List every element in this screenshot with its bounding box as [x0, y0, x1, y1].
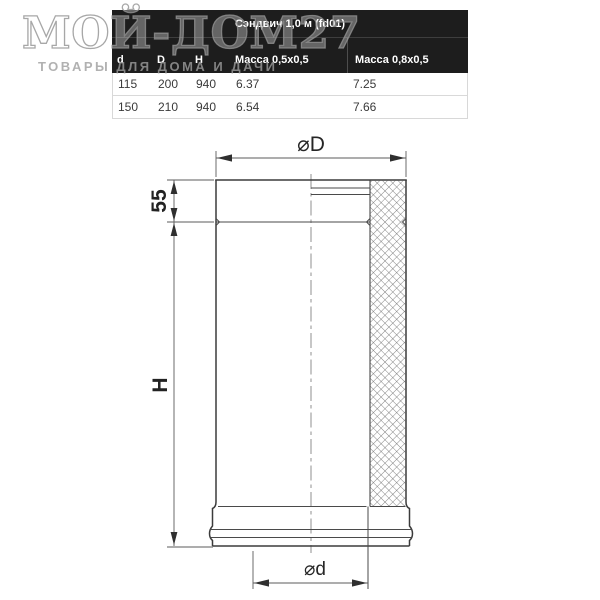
body-height-label: H	[149, 377, 172, 392]
cell-mass-05: 6.54	[231, 100, 348, 114]
cell-mass-08: 7.66	[348, 100, 467, 114]
dimension-collar-55: 55	[148, 180, 214, 222]
cell-mass-05: 6.37	[231, 77, 348, 91]
cell-H: 940	[191, 77, 231, 91]
cell-mass-08: 7.25	[348, 77, 467, 91]
table-title: Сэндвич 1,0 м (fd01)	[112, 10, 468, 37]
cell-H: 940	[191, 100, 231, 114]
table-body: 115 200 940 6.37 7.25 150 210 940 6.54 7…	[112, 73, 468, 119]
dimension-height-h: H	[149, 222, 213, 547]
column-header-d: d	[112, 38, 152, 73]
dimension-outer-diameter: ⌀D	[216, 133, 406, 177]
cell-d: 150	[113, 100, 153, 114]
cell-d: 115	[113, 77, 153, 91]
table-row: 150 210 940 6.54 7.66	[113, 95, 467, 118]
column-header-mass-05: Масса 0,5x0,5	[230, 38, 347, 73]
column-header-H: H	[190, 38, 230, 73]
cell-D: 210	[153, 100, 191, 114]
collar-height-label: 55	[148, 189, 171, 213]
inner-pipe-lip	[311, 188, 370, 195]
product-table: Сэндвич 1,0 м (fd01) d D H Масса 0,5x0,5…	[112, 10, 468, 119]
outer-diameter-label: ⌀D	[297, 133, 325, 156]
insulation-hatch	[370, 180, 406, 507]
table-header-row: d D H Масса 0,5x0,5 Масса 0,8x0,5	[112, 37, 468, 73]
column-header-D: D	[152, 38, 190, 73]
inner-diameter-label: ⌀d	[304, 559, 326, 580]
table-row: 115 200 940 6.37 7.25	[113, 73, 467, 95]
cell-D: 200	[153, 77, 191, 91]
column-header-mass-08: Масса 0,8x0,5	[347, 38, 468, 73]
